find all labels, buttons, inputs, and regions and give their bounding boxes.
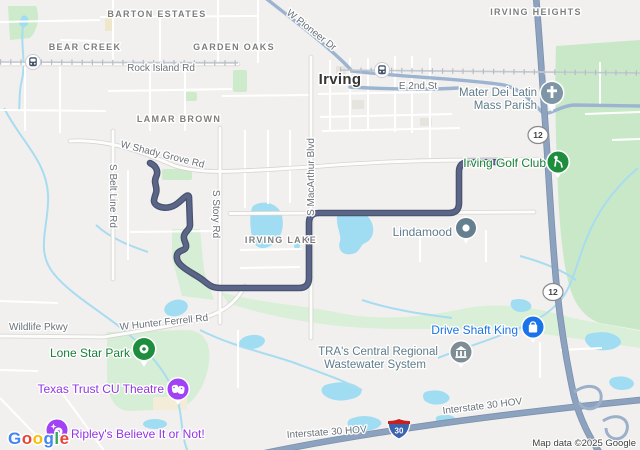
highway-shield-12-south: 12 <box>543 284 563 301</box>
neighborhood-label-irving-heights: IRVING HEIGHTS <box>490 7 582 17</box>
train-station-icon-irving[interactable] <box>375 63 390 78</box>
logo-letter: G <box>8 429 22 448</box>
neighborhood-label-barton-estates: BARTON ESTATES <box>107 9 206 19</box>
map-attribution: Map data ©2025 Google <box>532 438 636 449</box>
road-label-s-story-rd: S Story Rd <box>210 190 221 238</box>
map-canvas[interactable]: 12 12 30 BARTON ESTATES BEAR CREEK GARDE… <box>0 0 640 450</box>
logo-letter: e <box>60 429 70 448</box>
road-label-s-belt-line-rd: S Belt Line Rd <box>107 164 118 228</box>
poi-label-lone-star-park[interactable]: Lone Star Park <box>50 346 131 360</box>
poi-label-drive-shaft-king[interactable]: Drive Shaft King <box>431 323 518 337</box>
logo-letter: g <box>44 429 55 448</box>
road-label-wildlife-pkwy: Wildlife Pkwy <box>9 322 68 333</box>
neighborhood-label-lamar-brown: LAMAR BROWN <box>137 114 221 124</box>
poi-label-tra-line1[interactable]: TRA's Central Regional <box>318 346 438 358</box>
poi-label-mater-dei-line2[interactable]: Mass Parish <box>474 100 537 112</box>
neighborhood-label-garden-oaks: GARDEN OAKS <box>193 42 275 52</box>
road-label-e-2nd-st: E 2nd St <box>399 81 438 92</box>
shield-12-label: 12 <box>533 130 543 140</box>
poi-label-irving-golf-club[interactable]: Irving Golf Club <box>463 156 546 170</box>
neighborhood-label-bear-creek: BEAR CREEK <box>49 42 122 52</box>
shield-30-label: 30 <box>395 427 404 436</box>
poi-label-ripleys[interactable]: Ripley's Believe It or Not! <box>71 427 205 441</box>
neighborhood-label-irving-lake: IRVING LAKE <box>245 235 317 245</box>
road-label-s-macarthur-blvd: S MacArthur Blvd <box>306 138 317 216</box>
logo-letter: o <box>22 429 33 448</box>
train-station-icon-west[interactable] <box>26 55 41 70</box>
city-label-irving[interactable]: Irving <box>319 71 362 88</box>
poi-label-mater-dei-line1[interactable]: Mater Dei Latin <box>459 87 537 99</box>
poi-label-texas-trust-cu-theatre[interactable]: Texas Trust CU Theatre <box>38 382 165 396</box>
google-logo[interactable]: Google <box>8 429 70 448</box>
road-label-rock-island-rd: Rock Island Rd <box>127 63 195 74</box>
poi-label-lindamood[interactable]: Lindamood <box>393 225 452 239</box>
logo-letter: o <box>33 429 44 448</box>
shield-12-label: 12 <box>548 287 558 297</box>
highway-shield-12-north: 12 <box>528 127 548 144</box>
poi-label-tra-line2[interactable]: Wastewater System <box>324 359 426 371</box>
